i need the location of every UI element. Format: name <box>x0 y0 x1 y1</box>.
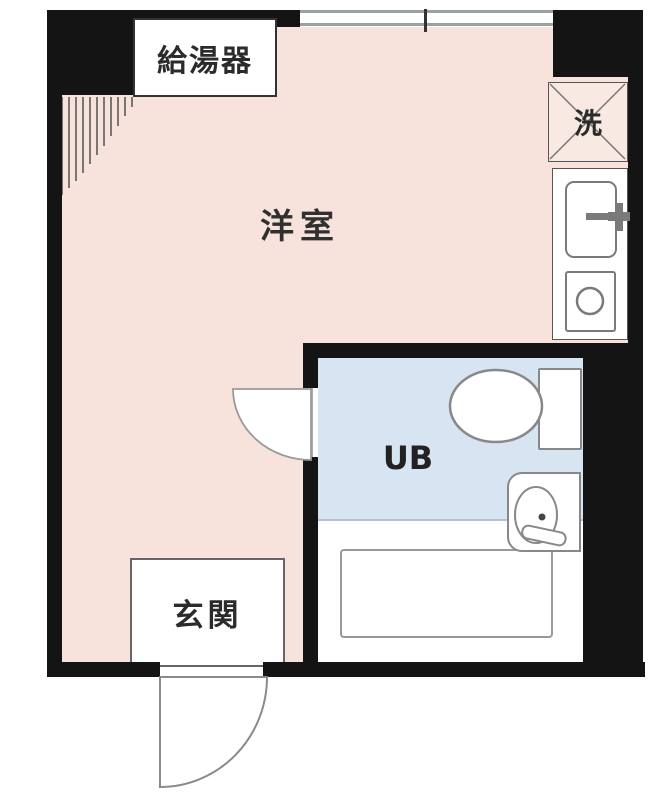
kitchen-fixtures <box>553 169 626 338</box>
wall-bottom-right <box>263 662 645 677</box>
unit-bath-block: UB <box>303 343 643 677</box>
entrance-label: 玄関 <box>132 560 283 665</box>
wall-corner-block-top-left <box>47 10 133 95</box>
wall-right <box>628 10 643 677</box>
washbasin-icon <box>506 471 584 555</box>
wall-left <box>47 10 62 677</box>
window-symbol <box>300 10 553 26</box>
wall-bottom-left <box>47 662 160 677</box>
entrance-door-swing-icon <box>150 672 280 794</box>
hatch-pattern <box>56 95 140 199</box>
water-heater-box: 給湯器 <box>133 18 277 97</box>
bathtub-icon <box>340 549 553 638</box>
toilet-icon <box>446 367 546 445</box>
unit-bath-label: UB <box>375 440 441 476</box>
ub-door-swing-icon <box>228 384 318 466</box>
window-mullion-tick <box>424 9 427 32</box>
kitchen-faucet-handle-bar-icon <box>608 212 630 221</box>
laundry-label: 洗 <box>549 83 627 161</box>
main-room-label: 洋室 <box>230 203 370 243</box>
laundry-box: 洗 <box>548 82 628 162</box>
stove-burner-icon <box>577 288 603 314</box>
water-heater-label: 給湯器 <box>135 20 275 95</box>
floorplan-canvas: 玄関 UB 給湯器 <box>0 0 666 800</box>
kitchen-counter <box>552 168 628 340</box>
entrance-box: 玄関 <box>130 558 285 667</box>
